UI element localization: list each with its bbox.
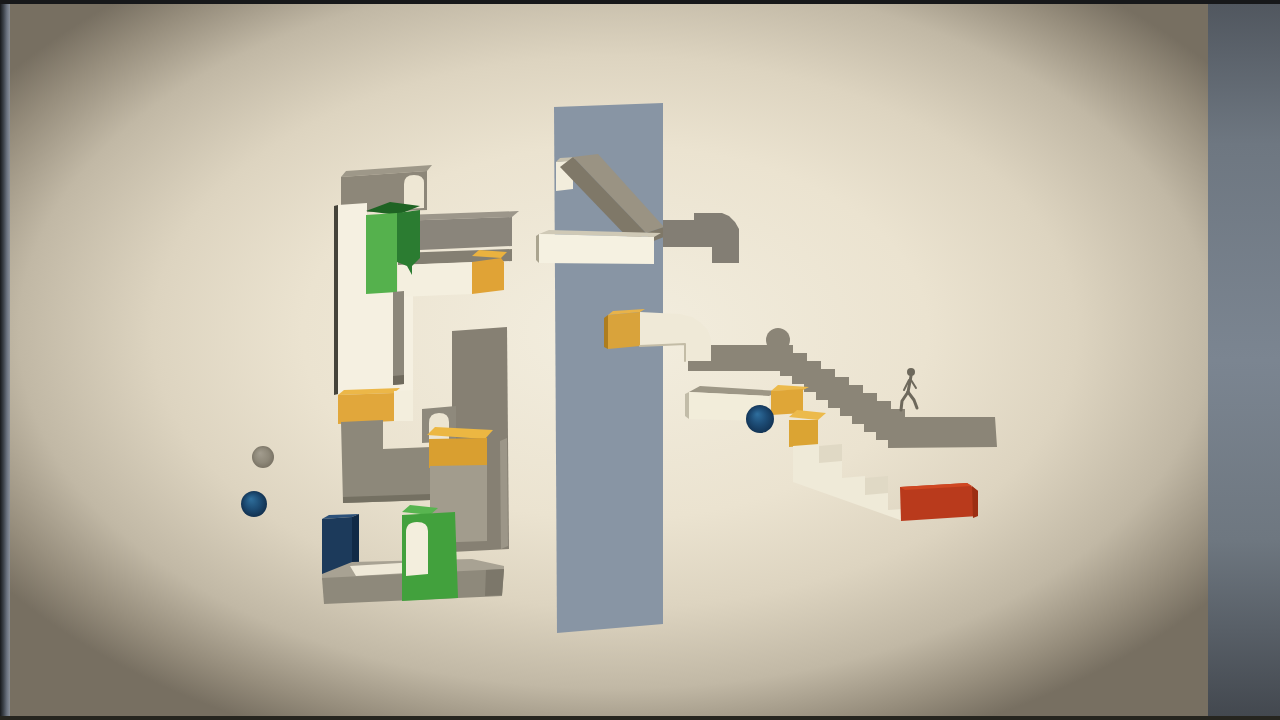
white-staircase-shade-1 bbox=[819, 444, 842, 463]
mid-orange-cap-front bbox=[429, 438, 487, 468]
letterbox-right-bar bbox=[1208, 0, 1280, 720]
center-white-beam-front bbox=[539, 234, 654, 264]
blue-sphere-left bbox=[241, 491, 267, 517]
red-block-right-side bbox=[972, 486, 978, 518]
game-viewport[interactable] bbox=[0, 0, 1280, 720]
right-orange-cube-b-front bbox=[789, 420, 818, 447]
center-white-beam-left-cap bbox=[536, 234, 539, 263]
left-top-arch-doorway bbox=[404, 175, 424, 209]
hanging-gray-rod-tip bbox=[393, 375, 404, 385]
green-arch-doorway bbox=[406, 522, 428, 576]
base-platform-right-cap bbox=[485, 569, 504, 596]
green-block-front bbox=[366, 213, 397, 294]
gray-sphere-left bbox=[252, 446, 274, 468]
pipe-orange-cap-side bbox=[604, 315, 608, 349]
white-staircase-shade-2 bbox=[865, 476, 888, 495]
white-column-left-edge bbox=[334, 205, 338, 395]
column-orange-cap-front bbox=[338, 393, 394, 424]
white-beam-orange-cap-front bbox=[472, 258, 504, 294]
frame-top-edge bbox=[0, 0, 1280, 4]
hanging-gray-rod bbox=[393, 291, 404, 385]
letterbox-left-bar bbox=[0, 0, 10, 720]
frame-bottom-edge bbox=[0, 716, 1280, 720]
column-white-sliver bbox=[394, 390, 413, 421]
scene-canvas[interactable] bbox=[0, 0, 1280, 720]
tall-gray-column-light-edge bbox=[500, 438, 508, 549]
pipe-orange-cap-front bbox=[608, 312, 640, 349]
small-arch-doorway bbox=[429, 413, 449, 441]
blue-sphere-right bbox=[746, 405, 774, 433]
right-white-beam-left-cap bbox=[685, 392, 689, 419]
